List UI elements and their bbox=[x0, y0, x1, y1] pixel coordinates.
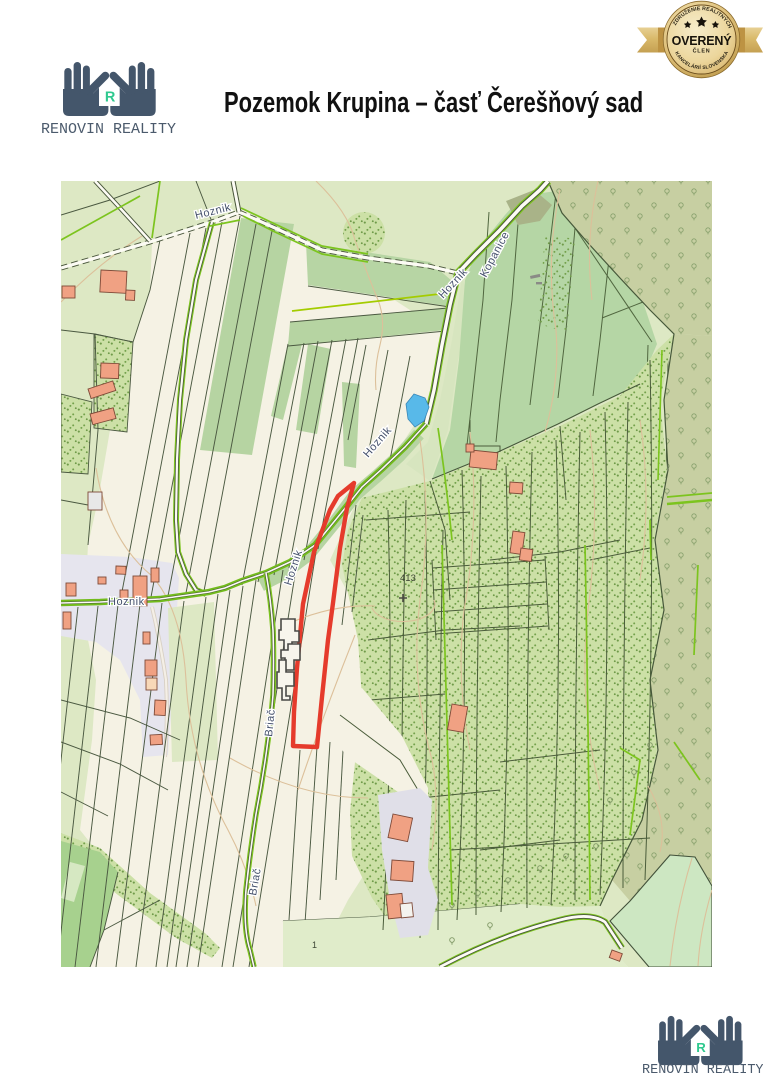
svg-text:R: R bbox=[696, 1040, 706, 1055]
svg-text:OVERENÝ: OVERENÝ bbox=[672, 33, 733, 48]
svg-text:ČLEN: ČLEN bbox=[693, 48, 711, 55]
svg-text:Hoznik: Hoznik bbox=[108, 596, 145, 608]
svg-text:R: R bbox=[105, 89, 116, 105]
svg-text:1: 1 bbox=[312, 940, 317, 950]
svg-text:413: 413 bbox=[400, 573, 416, 584]
